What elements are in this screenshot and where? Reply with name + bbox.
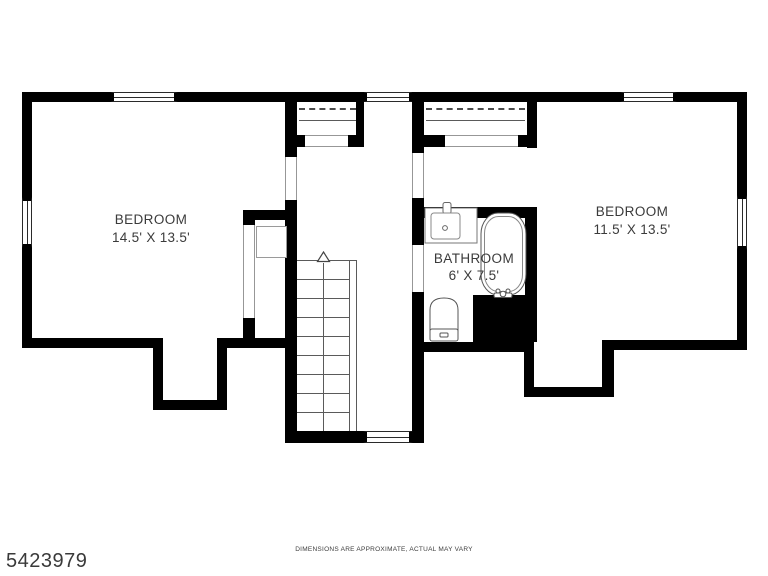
closet-shelf (256, 226, 287, 258)
window (22, 197, 32, 248)
closet-door (445, 135, 518, 147)
stairs-up-arrow-icon (316, 251, 331, 263)
top-wall-segment (178, 92, 363, 102)
room-dimensions: 14.5' X 13.5' (51, 229, 251, 247)
closet-door (305, 135, 348, 147)
hall-bottom-wall (413, 431, 424, 443)
closet-shelf-line (299, 120, 356, 121)
room-dimensions: 11.5' X 13.5' (532, 221, 732, 239)
closet-rod (426, 108, 525, 110)
dormer-wall (153, 400, 227, 410)
dormer-wall (217, 348, 227, 410)
listing-id: 5423979 (6, 550, 126, 573)
window (110, 92, 178, 102)
room-name: BATHROOM (394, 250, 554, 267)
hall-west-wall (285, 92, 297, 157)
closet-wall (285, 135, 305, 147)
right-wall-segment (737, 250, 747, 343)
bathroom-bottom-wall (412, 342, 534, 352)
closet-wall (348, 135, 364, 147)
window (363, 431, 413, 443)
closet-wall (243, 318, 255, 348)
toilet-icon (428, 296, 460, 343)
hall-east-wall (412, 198, 424, 245)
left-wall-segment (22, 92, 32, 197)
stair-direction-line (323, 263, 324, 431)
bottom-wall-segment (22, 338, 163, 348)
chimney-chase (473, 295, 537, 342)
closet-wall (412, 135, 445, 147)
room-name: BEDROOM (532, 203, 732, 221)
stair-stringer (349, 260, 350, 431)
bottom-wall-segment (614, 340, 747, 350)
hall-bottom-wall (285, 431, 363, 443)
door-opening (285, 157, 297, 200)
closet-rod (299, 108, 356, 110)
room-dimensions: 6' X 7.5' (394, 267, 554, 284)
room-label-bedroom-left: BEDROOM 14.5' X 13.5' (51, 211, 251, 247)
window (363, 92, 413, 102)
floor-plan: BEDROOM 14.5' X 13.5' BEDROOM 11.5' X 13… (0, 0, 768, 576)
hall-east-wall (412, 292, 424, 443)
window (620, 92, 677, 102)
left-wall-segment (22, 248, 32, 348)
top-wall-segment (22, 92, 110, 102)
right-wall-segment (737, 92, 747, 195)
dormer-wall (524, 387, 614, 397)
closet-shelf-line (426, 120, 525, 121)
disclaimer-text: DIMENSIONS ARE APPROXIMATE, ACTUAL MAY V… (184, 546, 584, 553)
stair-stringer (356, 260, 357, 431)
door-opening (412, 153, 424, 198)
room-label-bedroom-right: BEDROOM 11.5' X 13.5' (532, 203, 732, 239)
window (737, 195, 747, 250)
dormer-wall (602, 340, 614, 397)
top-wall-segment (413, 92, 620, 102)
closet-wall (518, 135, 537, 147)
room-label-bathroom: BATHROOM 6' X 7.5' (394, 250, 554, 284)
room-name: BEDROOM (51, 211, 251, 229)
sink-icon (424, 201, 478, 245)
